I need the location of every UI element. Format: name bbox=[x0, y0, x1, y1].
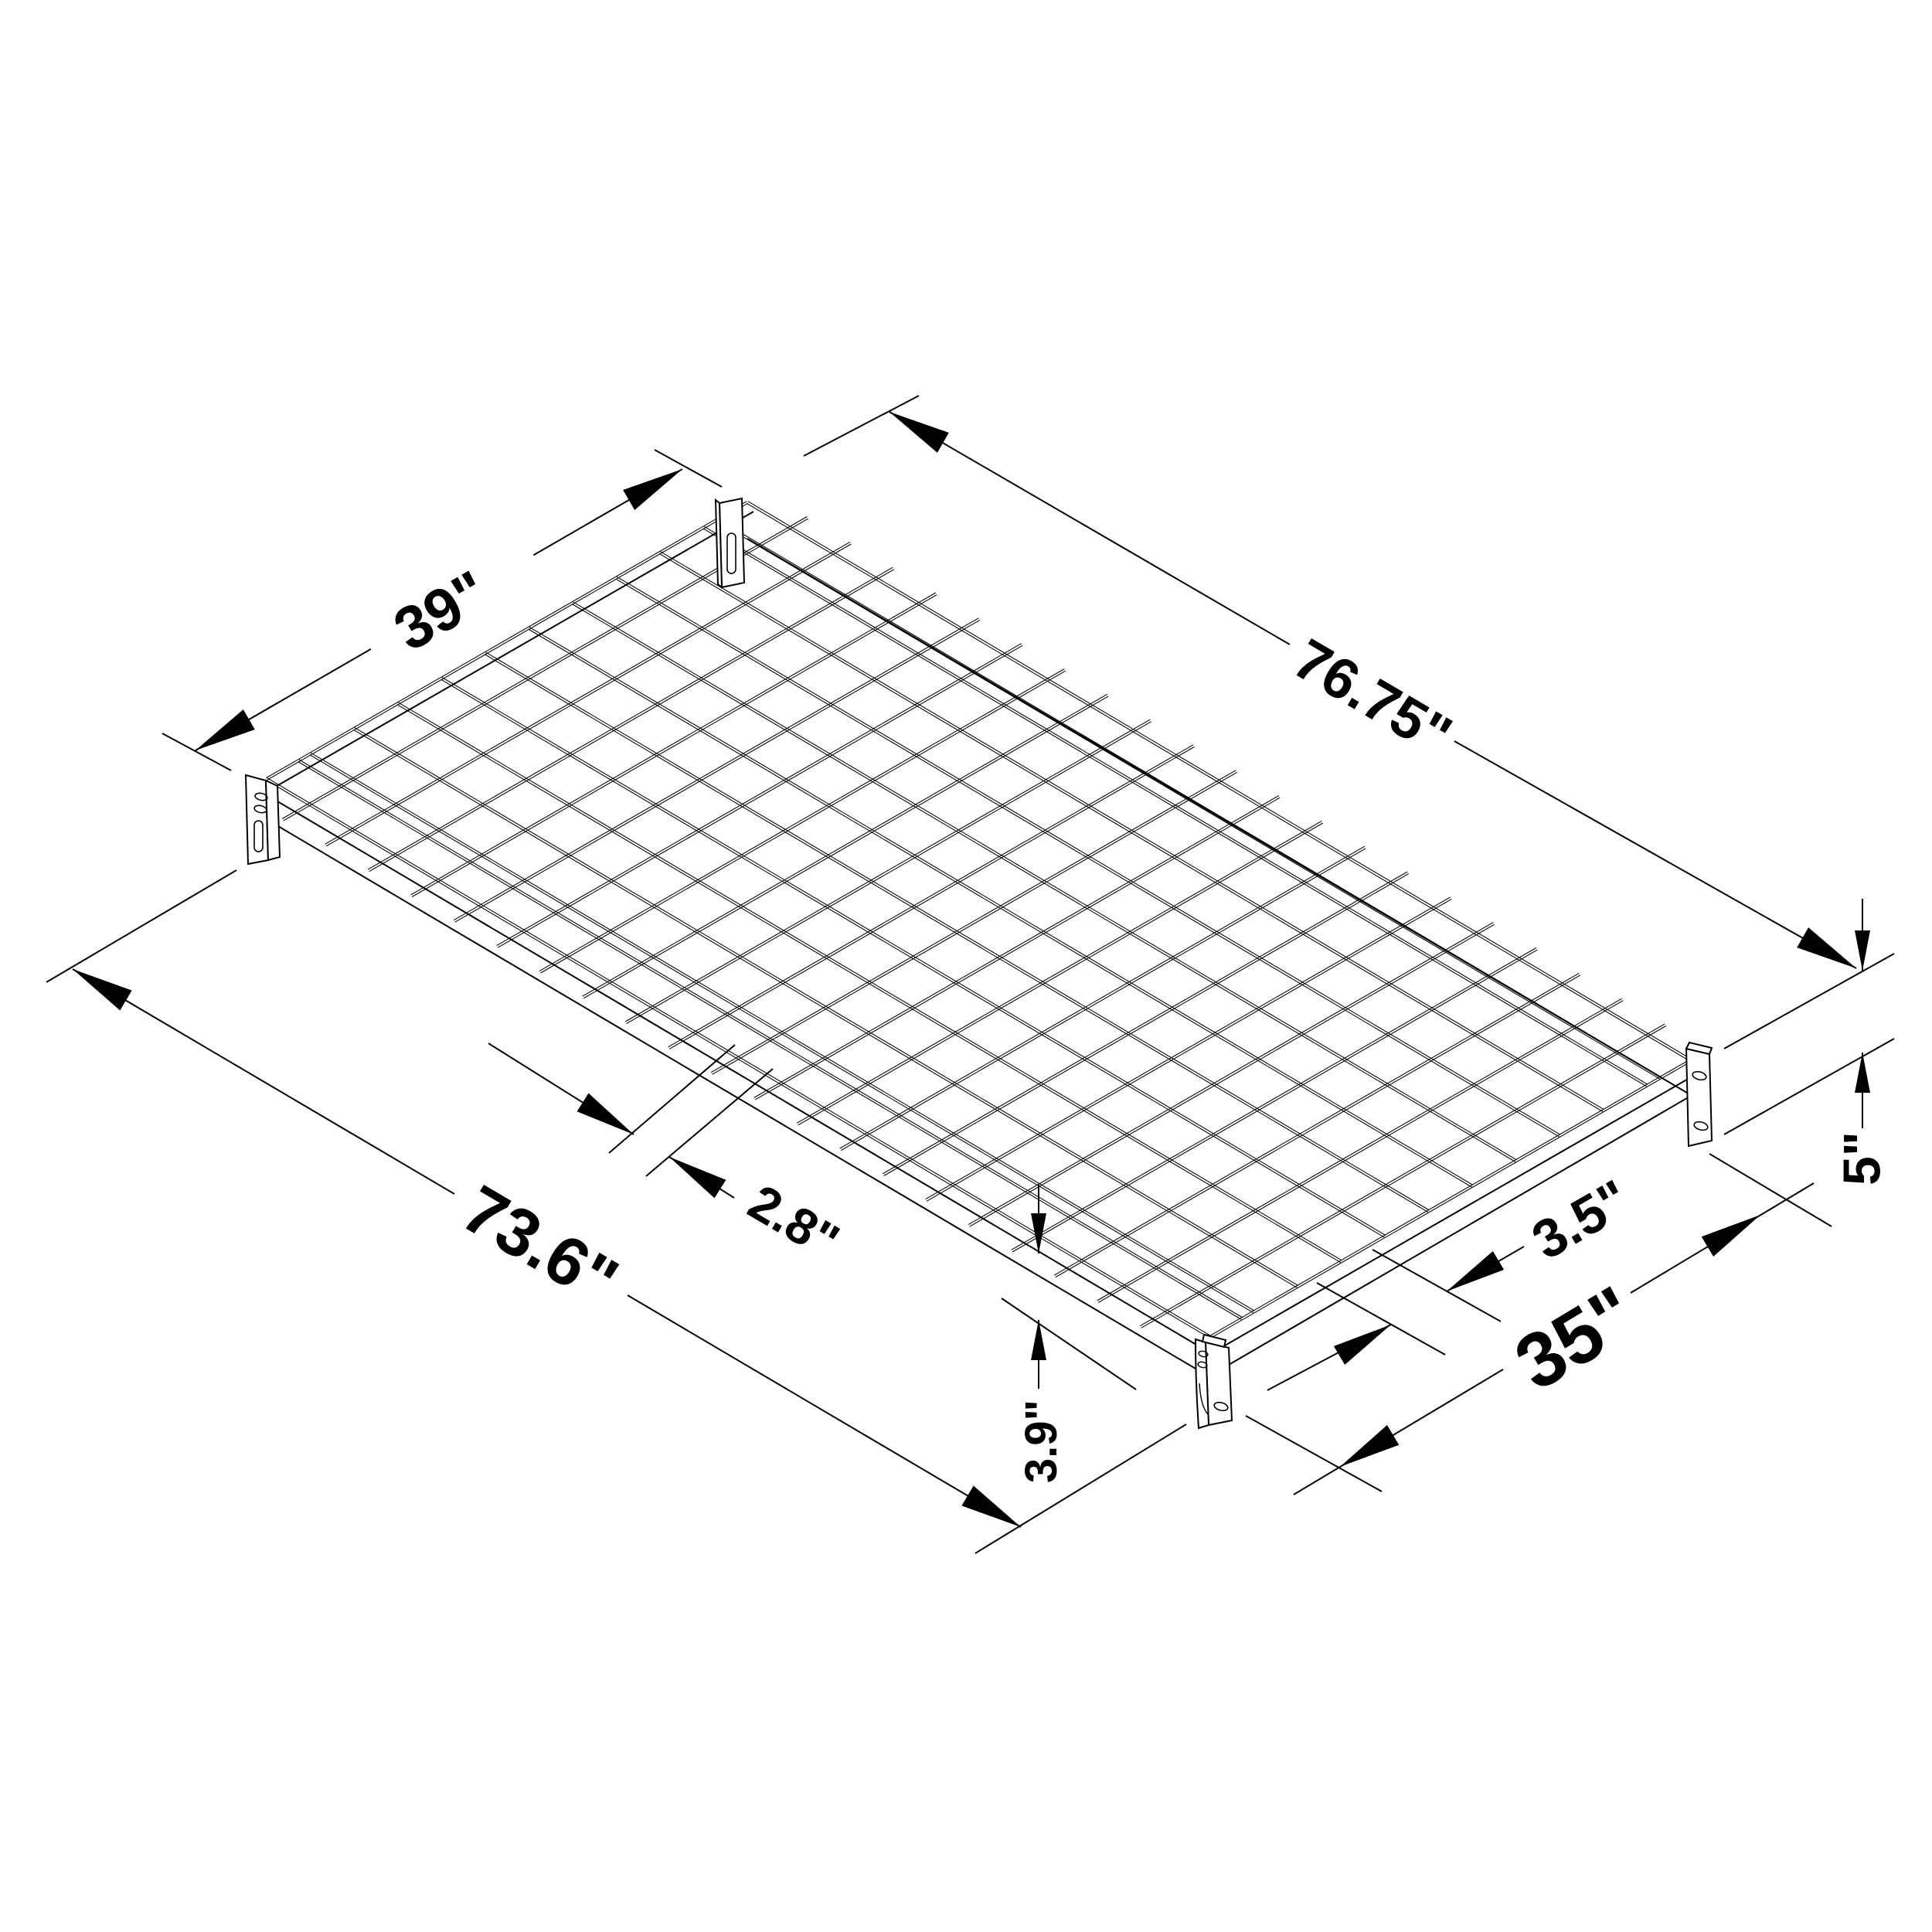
svg-text:5": 5" bbox=[1832, 1131, 1891, 1185]
svg-text:3.9": 3.9" bbox=[1016, 1400, 1066, 1483]
